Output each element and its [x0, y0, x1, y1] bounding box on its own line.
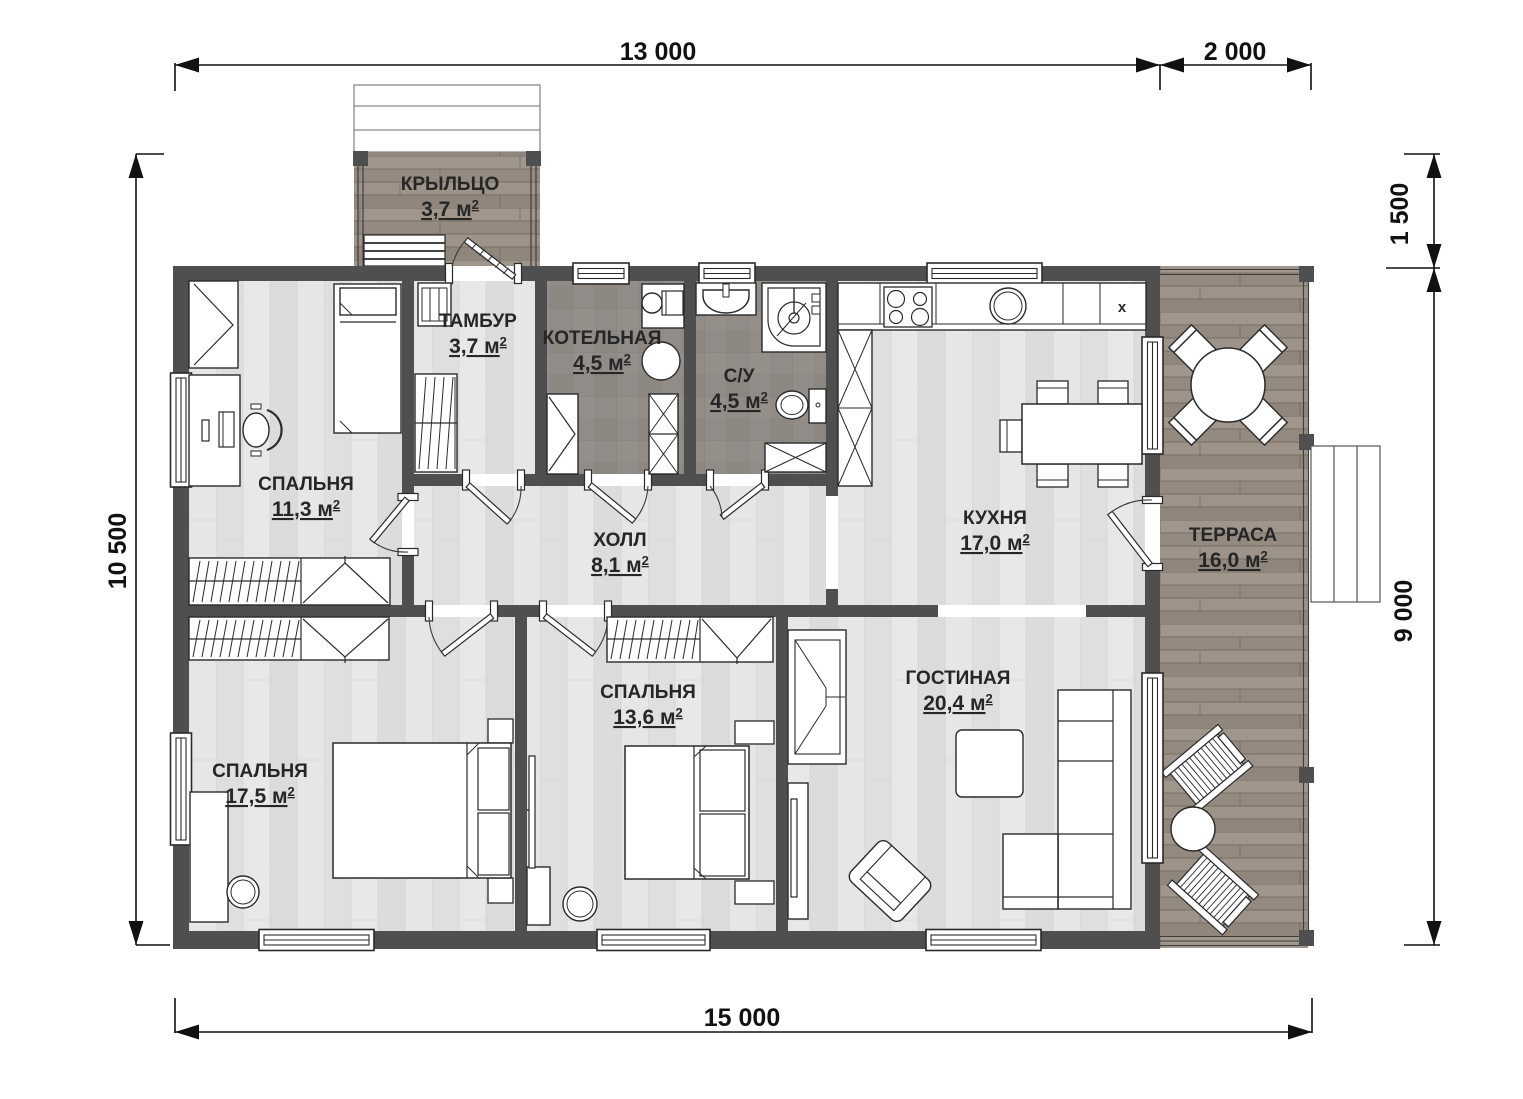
svg-text:13,6 м2: 13,6 м2 [613, 705, 682, 730]
svg-text:9 000: 9 000 [1390, 580, 1418, 643]
svg-text:С/У: С/У [724, 366, 755, 387]
svg-text:СПАЛЬНЯ: СПАЛЬНЯ [600, 682, 696, 703]
svg-text:ТЕРРАСА: ТЕРРАСА [1189, 525, 1277, 546]
svg-text:3,7 м2: 3,7 м2 [449, 334, 507, 359]
svg-text:13 000: 13 000 [620, 38, 696, 66]
svg-text:КРЫЛЬЦО: КРЫЛЬЦО [401, 174, 500, 195]
svg-text:15 000: 15 000 [704, 1004, 780, 1032]
svg-text:2 000: 2 000 [1204, 38, 1267, 66]
svg-text:КУХНЯ: КУХНЯ [963, 508, 1027, 529]
svg-text:ГОСТИНАЯ: ГОСТИНАЯ [906, 668, 1011, 689]
svg-text:17,0 м2: 17,0 м2 [960, 531, 1029, 556]
svg-text:СПАЛЬНЯ: СПАЛЬНЯ [258, 474, 354, 495]
svg-text:17,5 м2: 17,5 м2 [225, 784, 294, 809]
svg-text:8,1 м2: 8,1 м2 [591, 553, 649, 578]
svg-text:1 500: 1 500 [1386, 183, 1414, 246]
svg-text:КОТЕЛЬНАЯ: КОТЕЛЬНАЯ [543, 328, 662, 349]
svg-text:СПАЛЬНЯ: СПАЛЬНЯ [212, 761, 308, 782]
svg-text:4,5 м2: 4,5 м2 [710, 389, 768, 414]
svg-text:4,5 м2: 4,5 м2 [573, 351, 631, 376]
svg-text:16,0 м2: 16,0 м2 [1198, 548, 1267, 573]
svg-text:20,4 м2: 20,4 м2 [923, 691, 992, 716]
svg-text:ХОЛЛ: ХОЛЛ [593, 530, 646, 551]
svg-text:10 500: 10 500 [104, 513, 132, 589]
svg-text:ТАМБУР: ТАМБУР [439, 311, 517, 332]
svg-text:3,7 м2: 3,7 м2 [421, 197, 479, 222]
svg-text:11,3 м2: 11,3 м2 [272, 497, 340, 522]
svg-text:x: x [1118, 299, 1127, 316]
